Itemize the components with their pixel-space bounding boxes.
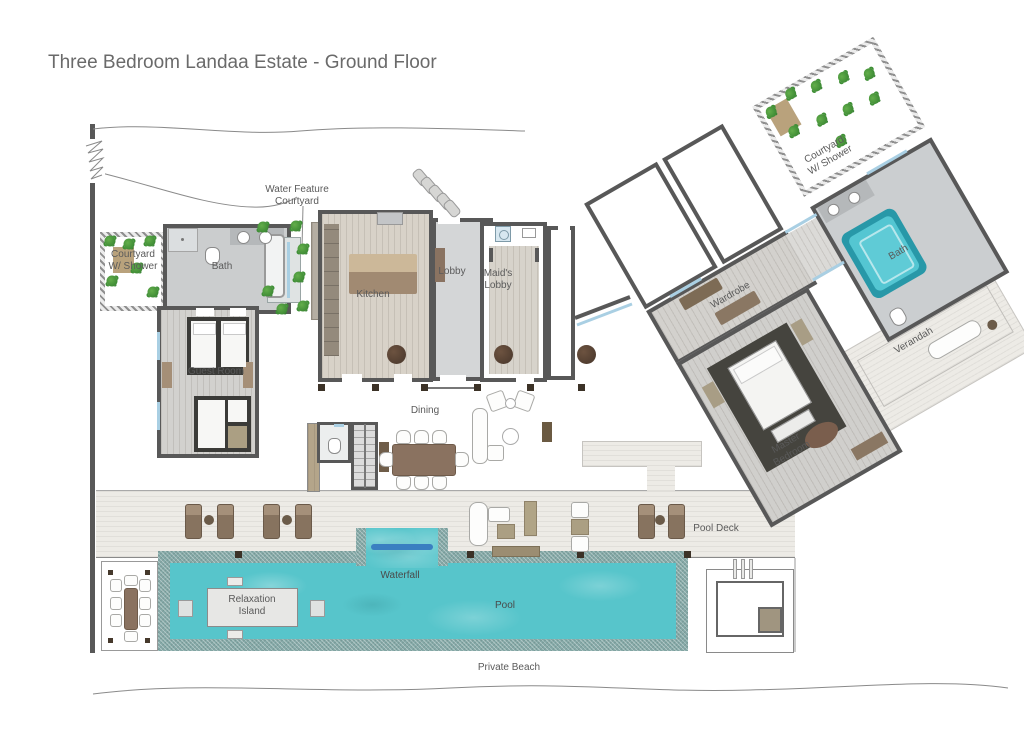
boundary-wall-top <box>90 124 95 142</box>
island-step-top <box>227 577 243 586</box>
window <box>157 332 160 360</box>
waterfall-wall-right <box>438 528 448 566</box>
pillow <box>223 323 246 335</box>
shower-drain-icon <box>181 238 184 241</box>
floor-plan: Three Bedroom Landaa Estate - Ground Flo… <box>0 0 1024 736</box>
dining-chair <box>414 476 429 490</box>
sink-icon <box>237 231 250 244</box>
ottoman <box>487 445 504 461</box>
mirror <box>334 424 344 427</box>
sun-lounger <box>638 504 655 539</box>
guest-room-label: Guest Room <box>176 366 256 378</box>
sun-lounger <box>263 504 280 539</box>
wall-stub <box>535 248 539 262</box>
door-gap <box>394 374 412 382</box>
stove <box>377 212 403 225</box>
post <box>578 384 585 391</box>
shoreline <box>93 684 1008 694</box>
boundary-line <box>93 127 525 133</box>
post <box>474 384 481 391</box>
deck-ottoman <box>497 524 515 539</box>
deck-bench-low <box>492 546 540 557</box>
pillow <box>193 323 216 335</box>
deck-walkway-branch <box>647 465 675 491</box>
waterfall-label: Waterfall <box>370 570 430 582</box>
deck-bench <box>524 501 537 536</box>
pool-label: Pool <box>485 600 525 612</box>
door-gap <box>558 224 570 232</box>
column-post <box>387 345 406 364</box>
kitchen-island-top <box>349 254 417 272</box>
plant-icon <box>277 304 288 315</box>
door-gap <box>440 375 466 383</box>
post <box>421 384 428 391</box>
sink-icon <box>259 231 272 244</box>
sun-lounger <box>217 504 234 539</box>
deck-chaise <box>469 502 488 546</box>
private-beach-label: Private Beach <box>464 662 554 674</box>
pavilion-post <box>108 570 113 575</box>
kitchen-label: Kitchen <box>343 289 403 301</box>
post <box>372 384 379 391</box>
outdoor-chair <box>124 575 138 586</box>
pool-bench-left <box>178 600 193 617</box>
plant-icon <box>105 236 116 247</box>
wall-break-icon <box>86 141 103 179</box>
post <box>577 551 584 558</box>
door-gap <box>438 216 460 224</box>
window <box>287 242 290 298</box>
deck-table <box>488 507 510 522</box>
page-title: Three Bedroom Landaa Estate - Ground Flo… <box>48 52 437 74</box>
daybed-mattress <box>228 400 247 422</box>
courtyard-shower-left-label: Courtyard W/ Shower <box>104 249 162 273</box>
outdoor-chair <box>110 579 122 592</box>
pavilion-post <box>145 570 150 575</box>
connector-wall <box>575 297 630 318</box>
relaxation-island-label: Relaxation Island <box>221 594 283 618</box>
beach-structure-pad <box>758 607 782 633</box>
plant-icon <box>145 236 156 247</box>
window <box>157 402 160 430</box>
toilet-icon <box>328 438 341 454</box>
outdoor-chair <box>139 597 151 610</box>
deck-walkway <box>582 441 702 467</box>
plant-icon <box>124 239 135 250</box>
pavilion-post <box>108 638 113 643</box>
plant-icon <box>294 272 305 283</box>
beach-structure-step <box>749 559 753 579</box>
wall-stub <box>489 248 493 262</box>
stair-rail <box>364 424 366 488</box>
post <box>684 551 691 558</box>
plant-icon <box>107 276 118 287</box>
island-step-bottom <box>227 630 243 639</box>
plant-icon <box>298 301 309 312</box>
side-table <box>162 362 172 388</box>
label-leader-line <box>302 206 303 248</box>
waterfall-bar-icon <box>371 544 433 550</box>
dining-chair <box>432 476 447 490</box>
post <box>467 551 474 558</box>
lounger-table <box>204 515 214 525</box>
wall-break-mask <box>83 139 105 181</box>
dining-label: Dining <box>400 405 450 417</box>
chaise-lounge <box>472 408 488 464</box>
dining-chair <box>396 430 411 444</box>
column-post <box>494 345 513 364</box>
daybed-mattress <box>198 400 225 448</box>
connector-window <box>577 304 632 325</box>
water-feature-courtyard-label: Water Feature Courtyard <box>255 184 339 208</box>
side-table-round <box>505 398 516 409</box>
sun-lounger <box>185 504 202 539</box>
maids-lobby-label: Maid's Lobby <box>476 268 520 292</box>
sun-lounger <box>295 504 312 539</box>
column-post <box>577 345 596 364</box>
plant-icon <box>298 244 309 255</box>
post <box>318 384 325 391</box>
lobby-label: Lobby <box>427 266 477 278</box>
dining-chair <box>455 452 469 467</box>
plant-icon <box>263 286 274 297</box>
beach-structure-step <box>733 559 737 579</box>
deck-side-table <box>571 502 589 518</box>
outdoor-chair <box>139 579 151 592</box>
daybed-ottoman <box>228 426 247 448</box>
door-gap <box>230 308 246 316</box>
outdoor-chair <box>124 631 138 642</box>
door-gap <box>342 374 362 382</box>
console-table <box>542 422 552 442</box>
outdoor-chair <box>139 614 151 627</box>
deck-side-table <box>571 536 589 552</box>
door-gap <box>196 308 214 316</box>
boundary-wall <box>90 183 95 653</box>
armchair <box>512 389 535 412</box>
pool-deck-label: Pool Deck <box>681 523 751 535</box>
deck-side-table-khaki <box>571 519 589 535</box>
beach-structure-step <box>741 559 745 579</box>
waterfall-wall-left <box>356 528 366 566</box>
plant-icon <box>291 221 302 232</box>
washer-drum-icon <box>499 230 509 240</box>
kitchen-cabinets <box>324 224 339 356</box>
door-gap <box>516 376 534 384</box>
dining-chair <box>432 430 447 444</box>
room-store <box>547 226 575 380</box>
post <box>527 384 534 391</box>
outdoor-dining-table <box>124 588 138 630</box>
pool-bench-right <box>310 600 325 617</box>
dining-table <box>392 444 456 476</box>
coffee-table-round <box>502 428 519 445</box>
lounger-table <box>655 515 665 525</box>
plant-icon <box>148 287 159 298</box>
outdoor-chair <box>110 597 122 610</box>
dining-chair <box>379 452 393 467</box>
pavilion-post <box>145 638 150 643</box>
dining-chair <box>414 430 429 444</box>
dining-chair <box>396 476 411 490</box>
sink-icon <box>522 228 536 238</box>
lounger-table <box>282 515 292 525</box>
plant-icon <box>258 222 269 233</box>
post <box>235 551 242 558</box>
outdoor-chair <box>110 614 122 627</box>
bath-left-label: Bath <box>200 261 244 273</box>
